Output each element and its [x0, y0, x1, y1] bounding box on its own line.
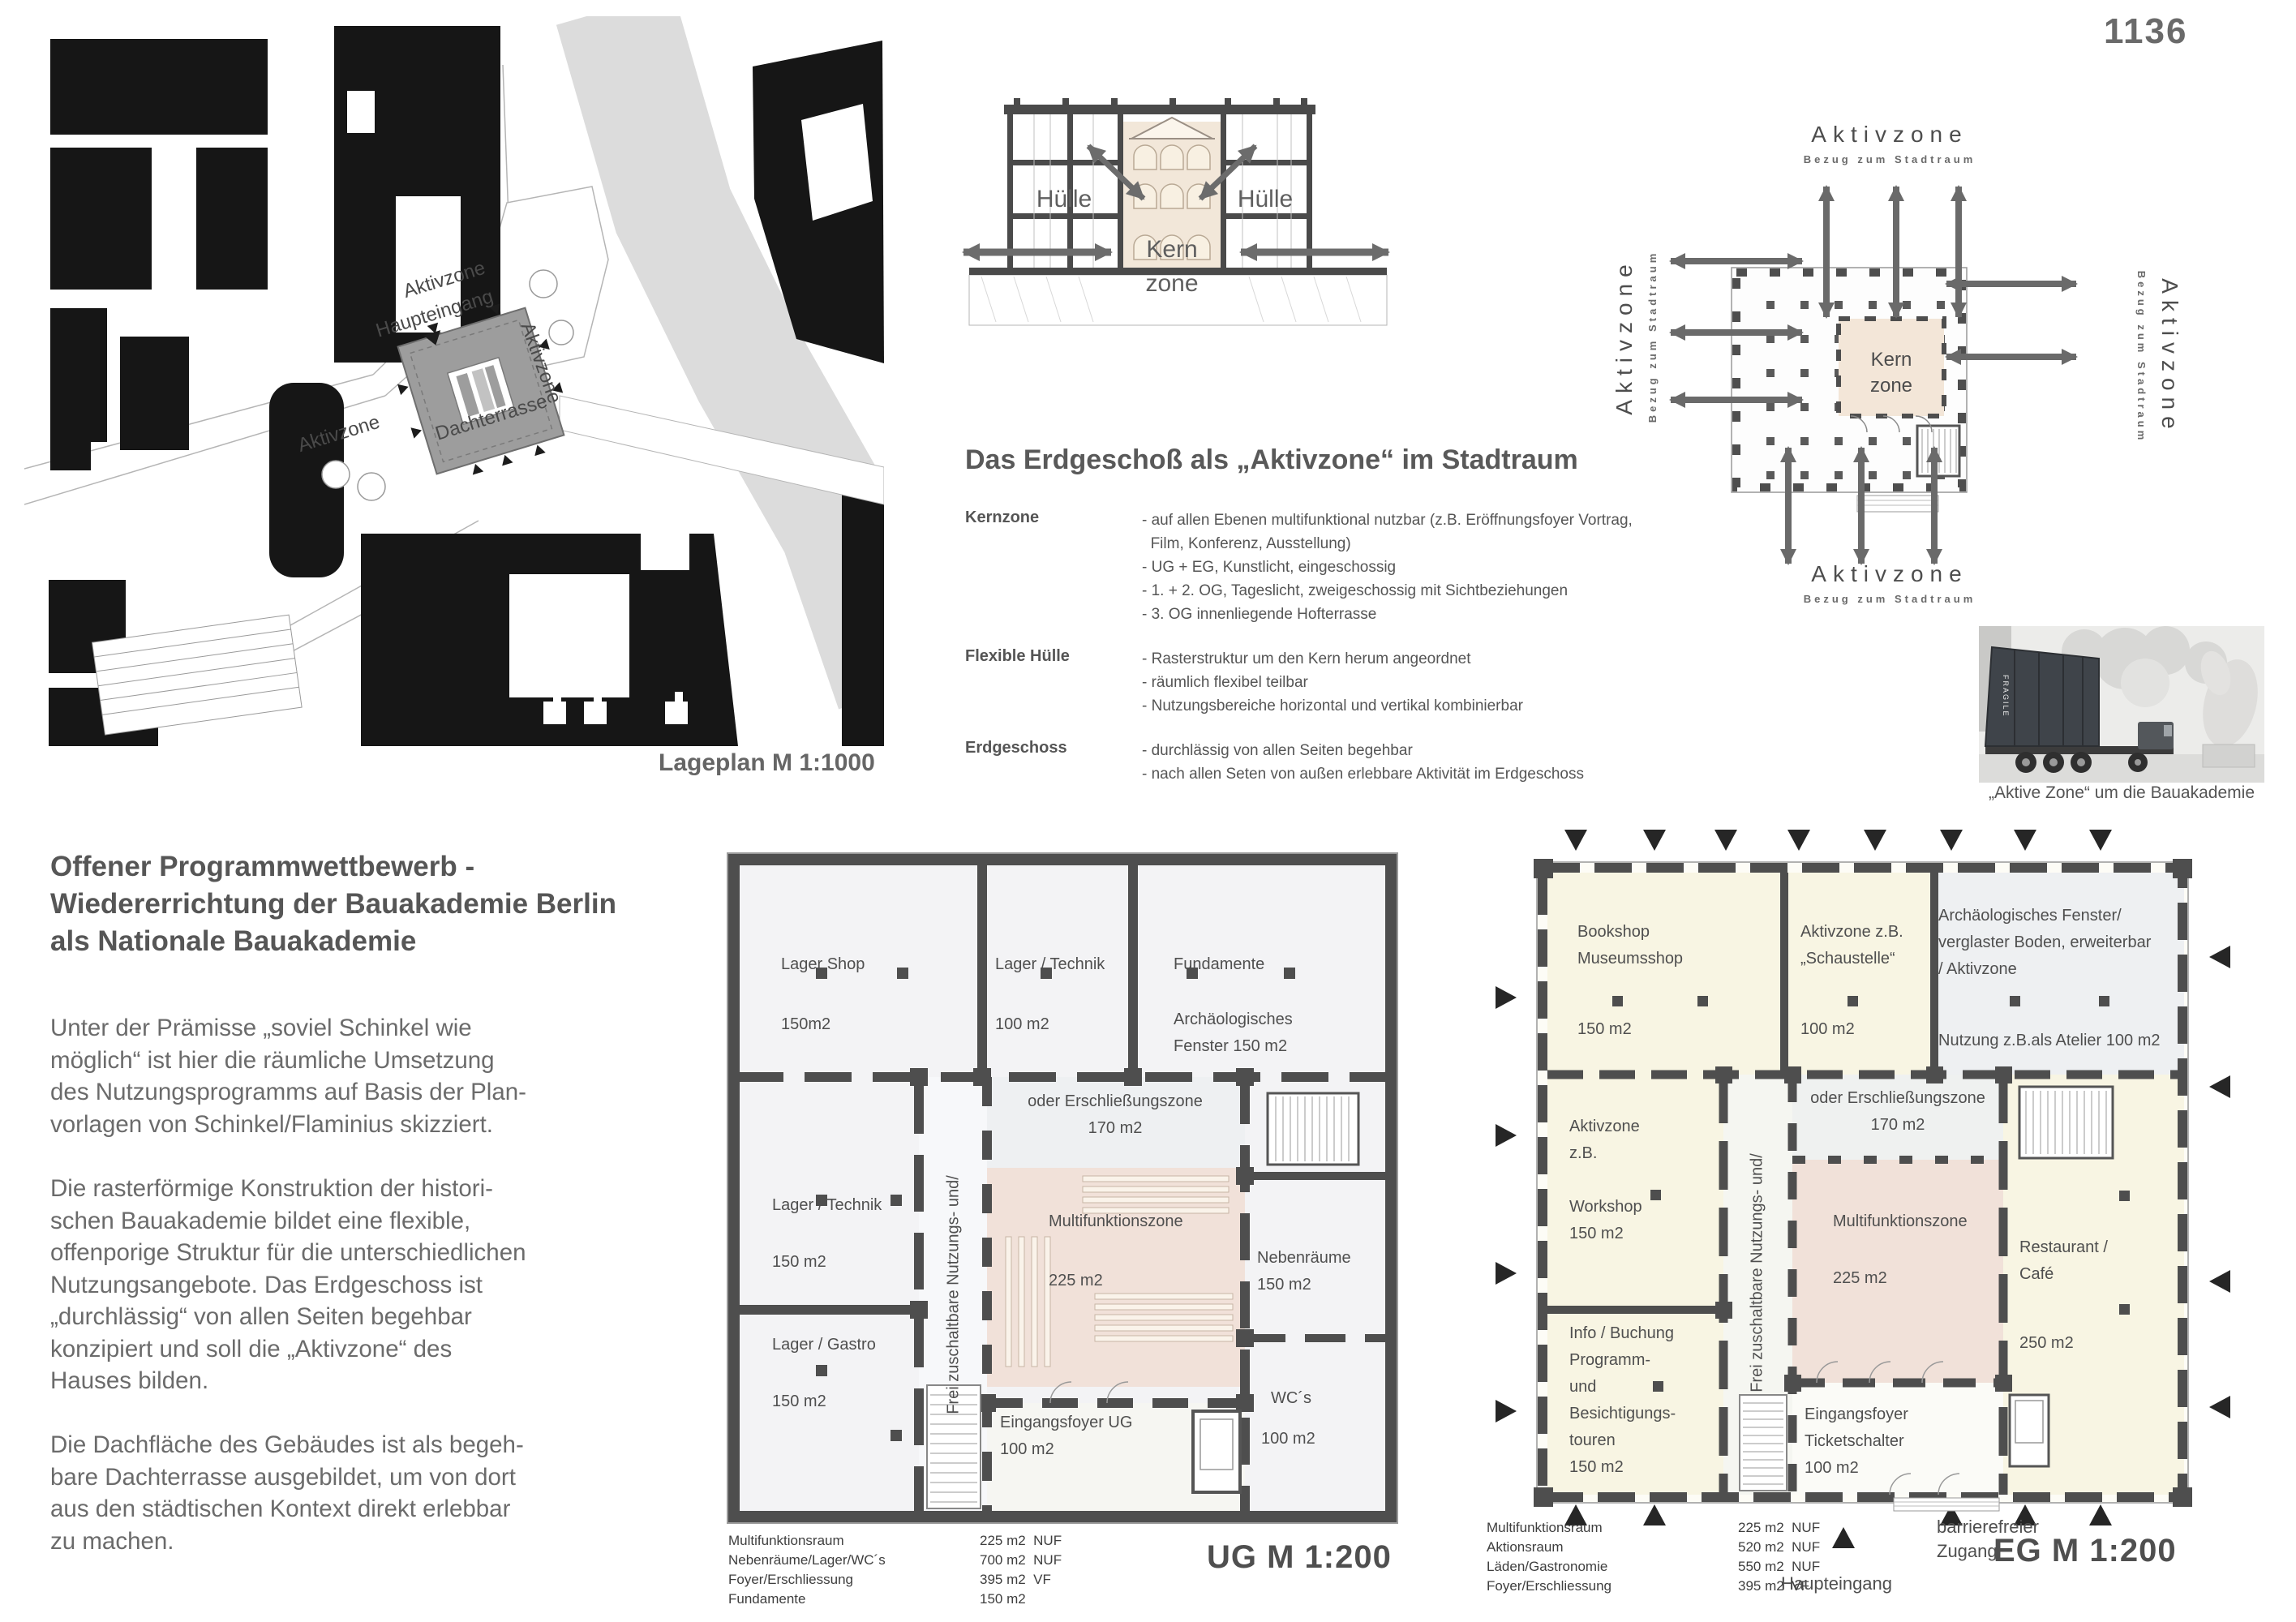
legend-value: 700 m2 NUF	[980, 1551, 1062, 1570]
zone-multifunktion-area-eg: 225 m2	[1833, 1265, 1887, 1292]
legend-name: Multifunktionsraum	[1487, 1518, 1730, 1538]
eg-legend: Multifunktionsraum225 m2 NUF Aktionsraum…	[1487, 1518, 1820, 1596]
haupteingang-triangle-icon	[1832, 1527, 1855, 1548]
ug-stair-right	[1268, 1093, 1358, 1165]
legend-name: Fundamente	[728, 1590, 972, 1609]
board-title: Offener Programmwettbewerb - Wiedererric…	[50, 848, 683, 960]
room-lager-technik-top: Lager / Technik	[995, 951, 1105, 978]
legend-value: 225 m2 NUF	[1738, 1518, 1820, 1538]
desc-flexible-huelle: - Rasterstruktur um den Kern herum angeo…	[1142, 647, 1523, 718]
legend-name: Foyer/Erschliessung	[728, 1570, 972, 1590]
room-lager-gastro-area: 150 m2	[772, 1388, 826, 1415]
legend-name: Läden/Gastronomie	[1487, 1557, 1730, 1577]
definition-row: Flexible Hülle - Rasterstruktur um den K…	[965, 647, 1727, 718]
zone-frei-zuschaltbar-vertical-eg: Frei zuschaltbare Nutzungs- und/	[1749, 1144, 1767, 1403]
room-atelier: Nutzung z.B.als Atelier 100 m2	[1938, 1028, 2160, 1054]
room-arch-fenster-eg: Archäologisches Fenster/ verglaster Bode…	[1938, 903, 2151, 983]
legend-name: Foyer/Erschliessung	[1487, 1577, 1730, 1596]
lageplan-caption: Lageplan M 1:1000	[659, 749, 875, 777]
term-erdgeschoss: Erdgeschoss	[965, 739, 1142, 786]
room-wc-area: 100 m2	[1261, 1426, 1315, 1453]
zone-erschliessung-eg: oder Erschließungszone 170 m2	[1796, 1085, 1999, 1139]
fragile-label: FRAGILE	[2002, 675, 2010, 718]
aktivzone-diagram: Aktivzone Bezug zum Stadtraum Aktivzone …	[1590, 45, 2206, 612]
room-lager-technik-left-area: 150 m2	[772, 1249, 826, 1276]
room-bookshop: Bookshop Museumsshop	[1577, 919, 1683, 972]
legend-value: 395 m2 VF	[980, 1570, 1062, 1590]
zone-multifunktion: Multifunktionszone	[1049, 1208, 1183, 1235]
kern-label: Kern	[1146, 236, 1197, 263]
definition-row: Erdgeschoss - durchlässig von allen Seit…	[965, 739, 1727, 786]
legend-value: 520 m2 NUF	[1738, 1538, 1820, 1557]
site-plan: Aktivzone Haupteingang Dachterrasse Akti…	[24, 16, 884, 746]
intro-paragraph-3: Die Dachfläche des Gebäudes ist als bege…	[50, 1429, 683, 1557]
room-eingangsfoyer-ug: Eingangsfoyer UG 100 m2	[1000, 1410, 1132, 1463]
aktivzone-right-sub: Bezug zum Stadtraum	[2135, 271, 2148, 444]
aktivzone-top-sub: Bezug zum Stadtraum	[1804, 153, 1976, 165]
aktivzone-left-label: Aktivzone	[1611, 258, 1637, 414]
legend-value: 150 m2	[980, 1590, 1062, 1609]
term-kernzone: Kernzone	[965, 508, 1142, 626]
room-fundamente: Fundamente	[1174, 951, 1264, 978]
room-restaurant-area: 250 m2	[2019, 1330, 2074, 1357]
room-nebenraeume: Nebenräume 150 m2	[1257, 1245, 1351, 1298]
aktivzone-left-sub: Bezug zum Stadtraum	[1646, 251, 1659, 423]
photo-caption: „Aktive Zone“ um die Bauakademie	[1963, 783, 2281, 803]
legend-value: 225 m2 NUF	[980, 1531, 1062, 1551]
multifunktionszone-fill	[1792, 1160, 2003, 1383]
eg-entrance-porch	[1894, 1498, 1999, 1511]
legend-name: Multifunktionsraum	[728, 1531, 972, 1551]
aktivzone-bottom-sub: Bezug zum Stadtraum	[1804, 593, 1976, 605]
zone-erschliessung: oder Erschließungszone 170 m2	[994, 1088, 1237, 1142]
aktivzone-top-label: Aktivzone	[1811, 122, 1968, 147]
kern-label: Kern	[1871, 349, 1912, 371]
room-info-buchung: Info / Buchung Programm- und Besichtigun…	[1569, 1320, 1676, 1481]
entrance-steps	[1857, 496, 1938, 512]
huelle-right-label: Hülle	[1238, 186, 1293, 212]
room-wc: WC´s	[1271, 1385, 1311, 1412]
section-diagram: Hülle Hülle Kern zone	[957, 85, 1654, 337]
haupteingang-label: Haupteingang	[1781, 1572, 1892, 1596]
room-lager-technik-left: Lager / Technik	[772, 1192, 882, 1219]
intro-paragraph-1: Unter der Prämisse „soviel Schinkel wie …	[50, 1012, 683, 1140]
eg-plan: Bookshop Museumsshop 150 m2 Aktivzone z.…	[1484, 815, 2255, 1553]
ug-scale-label: UG M 1:200	[1207, 1539, 1392, 1576]
room-restaurant: Restaurant / Café	[2019, 1234, 2108, 1288]
zone-frei-zuschaltbar-vertical: Frei zuschaltbare Nutzungs- und/	[945, 1165, 963, 1425]
room-lager-shop: Lager Shop	[781, 951, 865, 978]
legend-name: Nebenräume/Lager/WC´s	[728, 1551, 972, 1570]
aktivzone-bottom-label: Aktivzone	[1811, 561, 1968, 586]
competition-board: Aktivzone Haupteingang Dachterrasse Akti…	[0, 0, 2296, 1622]
legend-name: Aktionsraum	[1487, 1538, 1730, 1557]
stair-core	[1917, 426, 1959, 476]
huelle-left-label: Hülle	[1036, 186, 1092, 212]
room-eingangsfoyer-eg: Eingangsfoyer Ticketschalter 100 m2	[1805, 1401, 1908, 1482]
room-workshop: Aktivzone z.B. Workshop 150 m2	[1569, 1114, 1642, 1247]
zone-label: zone	[1870, 375, 1912, 397]
term-flexible-huelle: Flexible Hülle	[965, 647, 1142, 718]
room-schaustelle: Aktivzone z.B. „Schaustelle“	[1800, 919, 1903, 972]
eg-scale-label: EG M 1:200	[1993, 1533, 2177, 1569]
ug-plan: Lager Shop 150m2 Lager / Technik 100 m2 …	[726, 852, 1399, 1525]
room-lager-shop-area: 150m2	[781, 1011, 830, 1038]
zone-multifunktion-area: 225 m2	[1049, 1268, 1103, 1294]
zone-label: zone	[1145, 270, 1198, 297]
room-bookshop-area: 150 m2	[1577, 1016, 1632, 1043]
desc-erdgeschoss: - durchlässig von allen Seiten begehbar …	[1142, 739, 1584, 786]
zone-multifunktion-eg: Multifunktionszone	[1833, 1208, 1968, 1235]
intro-paragraph-2: Die rasterförmige Konstruktion der histo…	[50, 1173, 683, 1397]
ug-legend: Multifunktionsraum225 m2 NUF Nebenräume/…	[728, 1531, 1062, 1609]
room-arch-fenster: Archäologisches Fenster 150 m2	[1174, 1006, 1293, 1060]
room-lager-gastro: Lager / Gastro	[772, 1332, 876, 1358]
entry-number: 1136	[2104, 11, 2187, 52]
aktivzone-right-label: Aktivzone	[2157, 278, 2182, 435]
aktive-zone-photo: FRAGILE	[1979, 626, 2264, 783]
room-schaustelle-area: 100 m2	[1800, 1016, 1855, 1043]
desc-kernzone: - auf allen Ebenen multifunktional nutzb…	[1142, 508, 1633, 626]
room-lager-technik-top-area: 100 m2	[995, 1011, 1049, 1038]
